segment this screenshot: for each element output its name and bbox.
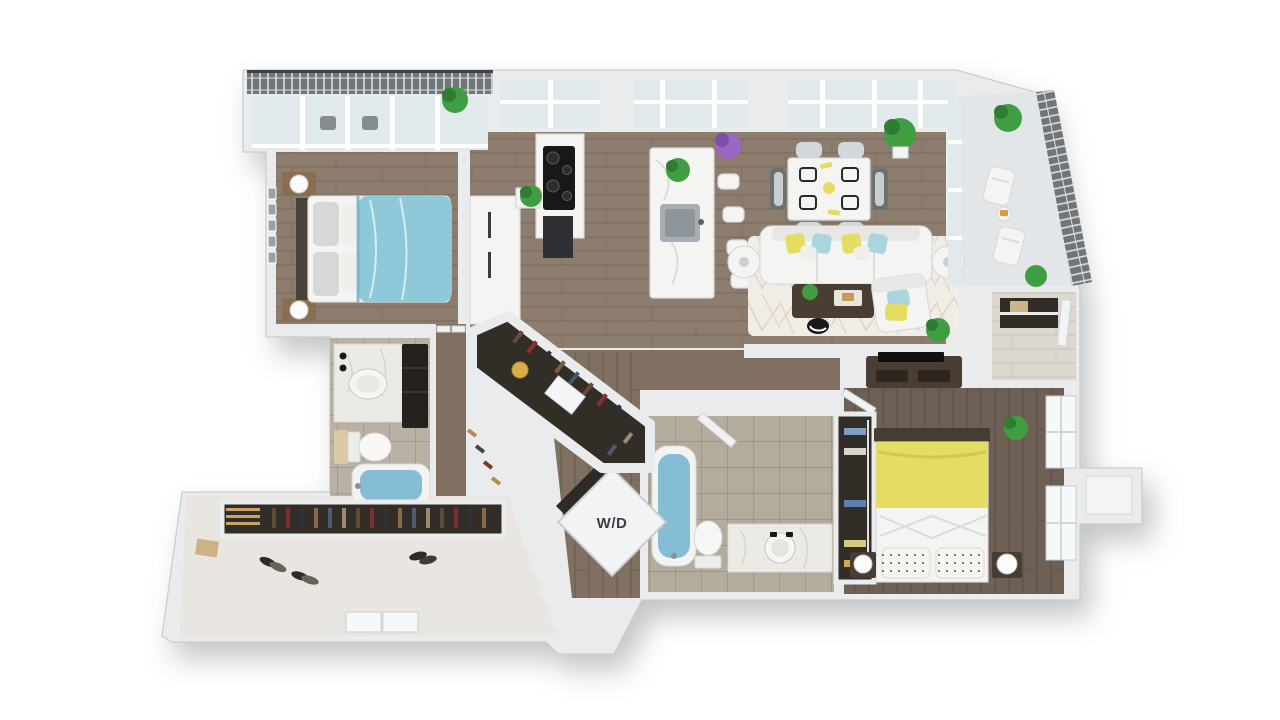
juliet-balcony — [1086, 476, 1132, 514]
wall-column — [600, 74, 634, 132]
folded-clothes — [844, 500, 866, 507]
bar-stool — [723, 207, 744, 222]
duvet-yellow — [876, 442, 988, 508]
burner — [547, 180, 559, 192]
bedroom-hall-floor — [436, 324, 466, 498]
throw-pillow-yellow — [885, 303, 908, 321]
floor-plan-3d: W/D — [0, 0, 1280, 720]
bathtub — [652, 446, 696, 566]
door-leaf — [452, 326, 465, 332]
footboard — [874, 428, 990, 442]
table-lamp — [290, 301, 308, 319]
kitchen-cabinets-left — [470, 196, 520, 324]
bar-stool — [718, 174, 739, 189]
folded-clothes — [844, 428, 866, 435]
tv — [878, 352, 944, 362]
washer-dryer-label: W/D — [597, 515, 628, 532]
folded-clothes — [844, 540, 866, 547]
tub-faucet — [671, 553, 677, 559]
pillow — [313, 202, 339, 246]
burner — [547, 152, 559, 164]
dining-chair — [838, 142, 864, 158]
pillow — [313, 252, 339, 296]
faucet — [698, 219, 704, 225]
bathroom-cabinet — [402, 344, 428, 428]
decor-orange — [1000, 210, 1008, 216]
door-leaf — [437, 326, 450, 332]
tv-console — [866, 352, 962, 388]
wall-art-frames — [268, 188, 276, 263]
storage-box — [1010, 301, 1028, 312]
master-bed — [296, 196, 452, 302]
plant-small — [802, 284, 818, 300]
faucet — [340, 365, 347, 372]
bistro-chair — [362, 116, 378, 130]
bath-mat — [334, 430, 348, 464]
vanity — [728, 524, 832, 572]
planter — [893, 147, 908, 158]
tub-faucet — [355, 483, 361, 489]
storage-box — [195, 539, 219, 558]
burner — [563, 192, 572, 201]
headboard — [296, 198, 308, 300]
folded-clothes — [844, 448, 866, 455]
dining-chair — [796, 142, 822, 158]
gold-stool — [512, 362, 528, 378]
faucet — [786, 532, 793, 537]
bed-2 — [874, 428, 990, 582]
toilet — [694, 521, 722, 568]
toilet — [348, 432, 391, 462]
plant — [1025, 265, 1047, 287]
burner — [563, 166, 572, 175]
table-lamp — [854, 555, 872, 573]
balcony-left — [247, 70, 493, 150]
bistro-chair — [320, 116, 336, 130]
kitchen-tall-cabinet — [543, 216, 573, 258]
armchair — [871, 273, 932, 334]
pillow — [341, 252, 358, 292]
vanity — [334, 344, 402, 422]
pillow — [341, 206, 358, 246]
wall-column — [748, 74, 788, 132]
table-lamp — [997, 554, 1017, 574]
floor-plan-stage: W/D — [0, 0, 1280, 720]
table-lamp — [290, 175, 308, 193]
faucet — [340, 353, 347, 360]
faucet — [770, 532, 777, 537]
coffee-table — [792, 284, 874, 318]
centerpiece — [823, 182, 835, 194]
closet-shelf-band — [222, 502, 504, 536]
